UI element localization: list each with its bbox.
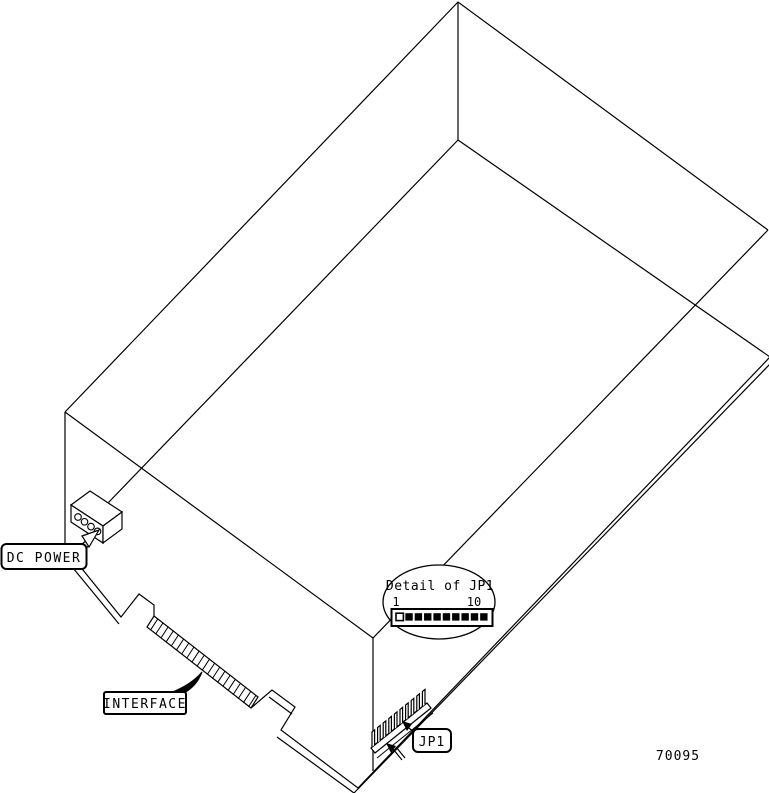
interface-callout-tail xyxy=(170,672,202,693)
dc-power-label: DC POWER xyxy=(7,551,82,566)
detail-pin1-label: 1 xyxy=(392,595,399,609)
detail-pin10-label: 10 xyxy=(467,595,481,609)
dc-power-callout: DC POWER xyxy=(2,530,100,569)
interface-label: INTERFACE xyxy=(103,697,187,712)
jp1-label: JP1 xyxy=(419,735,445,750)
jp1-detail-callout: Detail of JP1 1 10 xyxy=(383,565,495,639)
pcb-front-right-edge xyxy=(251,357,769,793)
diagram-page: Detail of JP1 1 10 DC POWER INTERFACE JP… xyxy=(0,0,769,793)
drive-body-outline xyxy=(64,2,769,793)
detail-title: Detail of JP1 xyxy=(386,579,494,594)
interface-callout: INTERFACE xyxy=(103,672,202,714)
hard-drive-diagram: Detail of JP1 1 10 DC POWER INTERFACE JP… xyxy=(0,0,769,793)
figure-number: 70095 xyxy=(656,749,700,764)
top-face-edges xyxy=(65,2,768,638)
bottom-rear-edges xyxy=(108,140,769,503)
